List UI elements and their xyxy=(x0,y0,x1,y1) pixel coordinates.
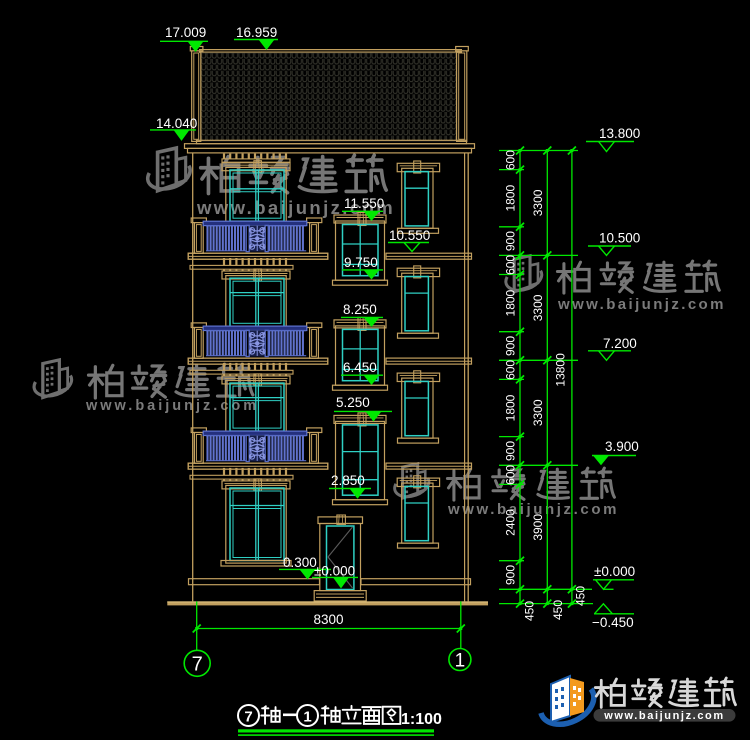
svg-text:450: 450 xyxy=(574,586,588,606)
svg-text:9.750: 9.750 xyxy=(344,255,378,270)
svg-text:900: 900 xyxy=(504,441,518,461)
svg-text:7: 7 xyxy=(192,654,203,676)
svg-text:7.200: 7.200 xyxy=(603,336,637,351)
svg-text:450: 450 xyxy=(523,601,537,621)
svg-text:10.550: 10.550 xyxy=(389,228,430,243)
svg-text:13800: 13800 xyxy=(554,353,568,387)
svg-text:1800: 1800 xyxy=(504,289,518,316)
svg-text:±0.000: ±0.000 xyxy=(314,564,355,579)
svg-text:3.900: 3.900 xyxy=(605,439,639,454)
svg-text:10.500: 10.500 xyxy=(599,231,640,246)
svg-text:600: 600 xyxy=(504,465,518,485)
svg-text:600: 600 xyxy=(504,360,518,380)
svg-text:5.250: 5.250 xyxy=(336,395,370,410)
svg-text:www.baijunjz.com: www.baijunjz.com xyxy=(557,296,726,313)
svg-text:11.550: 11.550 xyxy=(344,196,384,211)
svg-text:450: 450 xyxy=(551,600,565,620)
svg-text:1:100: 1:100 xyxy=(401,711,442,728)
svg-text:2400: 2400 xyxy=(504,509,518,536)
svg-text:14.040: 14.040 xyxy=(156,116,197,131)
svg-text:6.450: 6.450 xyxy=(343,360,377,375)
svg-text:2.850: 2.850 xyxy=(331,473,365,488)
svg-text:3900: 3900 xyxy=(531,514,545,541)
svg-text:8.250: 8.250 xyxy=(343,302,377,317)
svg-text:16.959: 16.959 xyxy=(236,25,277,40)
svg-text:8300: 8300 xyxy=(314,612,344,627)
svg-text:7: 7 xyxy=(244,709,252,726)
svg-text:www.baijunjz.com: www.baijunjz.com xyxy=(603,710,725,722)
svg-text:17.009: 17.009 xyxy=(165,25,206,40)
svg-text:600: 600 xyxy=(504,150,518,170)
svg-text:3300: 3300 xyxy=(531,399,545,426)
svg-text:−0.450: −0.450 xyxy=(592,615,634,630)
svg-text:900: 900 xyxy=(504,565,518,585)
svg-text:1800: 1800 xyxy=(504,185,518,212)
svg-text:900: 900 xyxy=(504,336,518,356)
svg-text:3300: 3300 xyxy=(531,189,545,216)
svg-text:13.800: 13.800 xyxy=(599,126,640,141)
svg-text:1: 1 xyxy=(303,709,311,726)
svg-text:1800: 1800 xyxy=(504,394,518,421)
svg-text:0.300: 0.300 xyxy=(283,555,317,570)
svg-text:600: 600 xyxy=(504,255,518,275)
svg-text:3300: 3300 xyxy=(531,294,545,321)
svg-text:1: 1 xyxy=(455,651,466,672)
svg-text:900: 900 xyxy=(504,231,518,251)
svg-text:±0.000: ±0.000 xyxy=(594,564,635,579)
